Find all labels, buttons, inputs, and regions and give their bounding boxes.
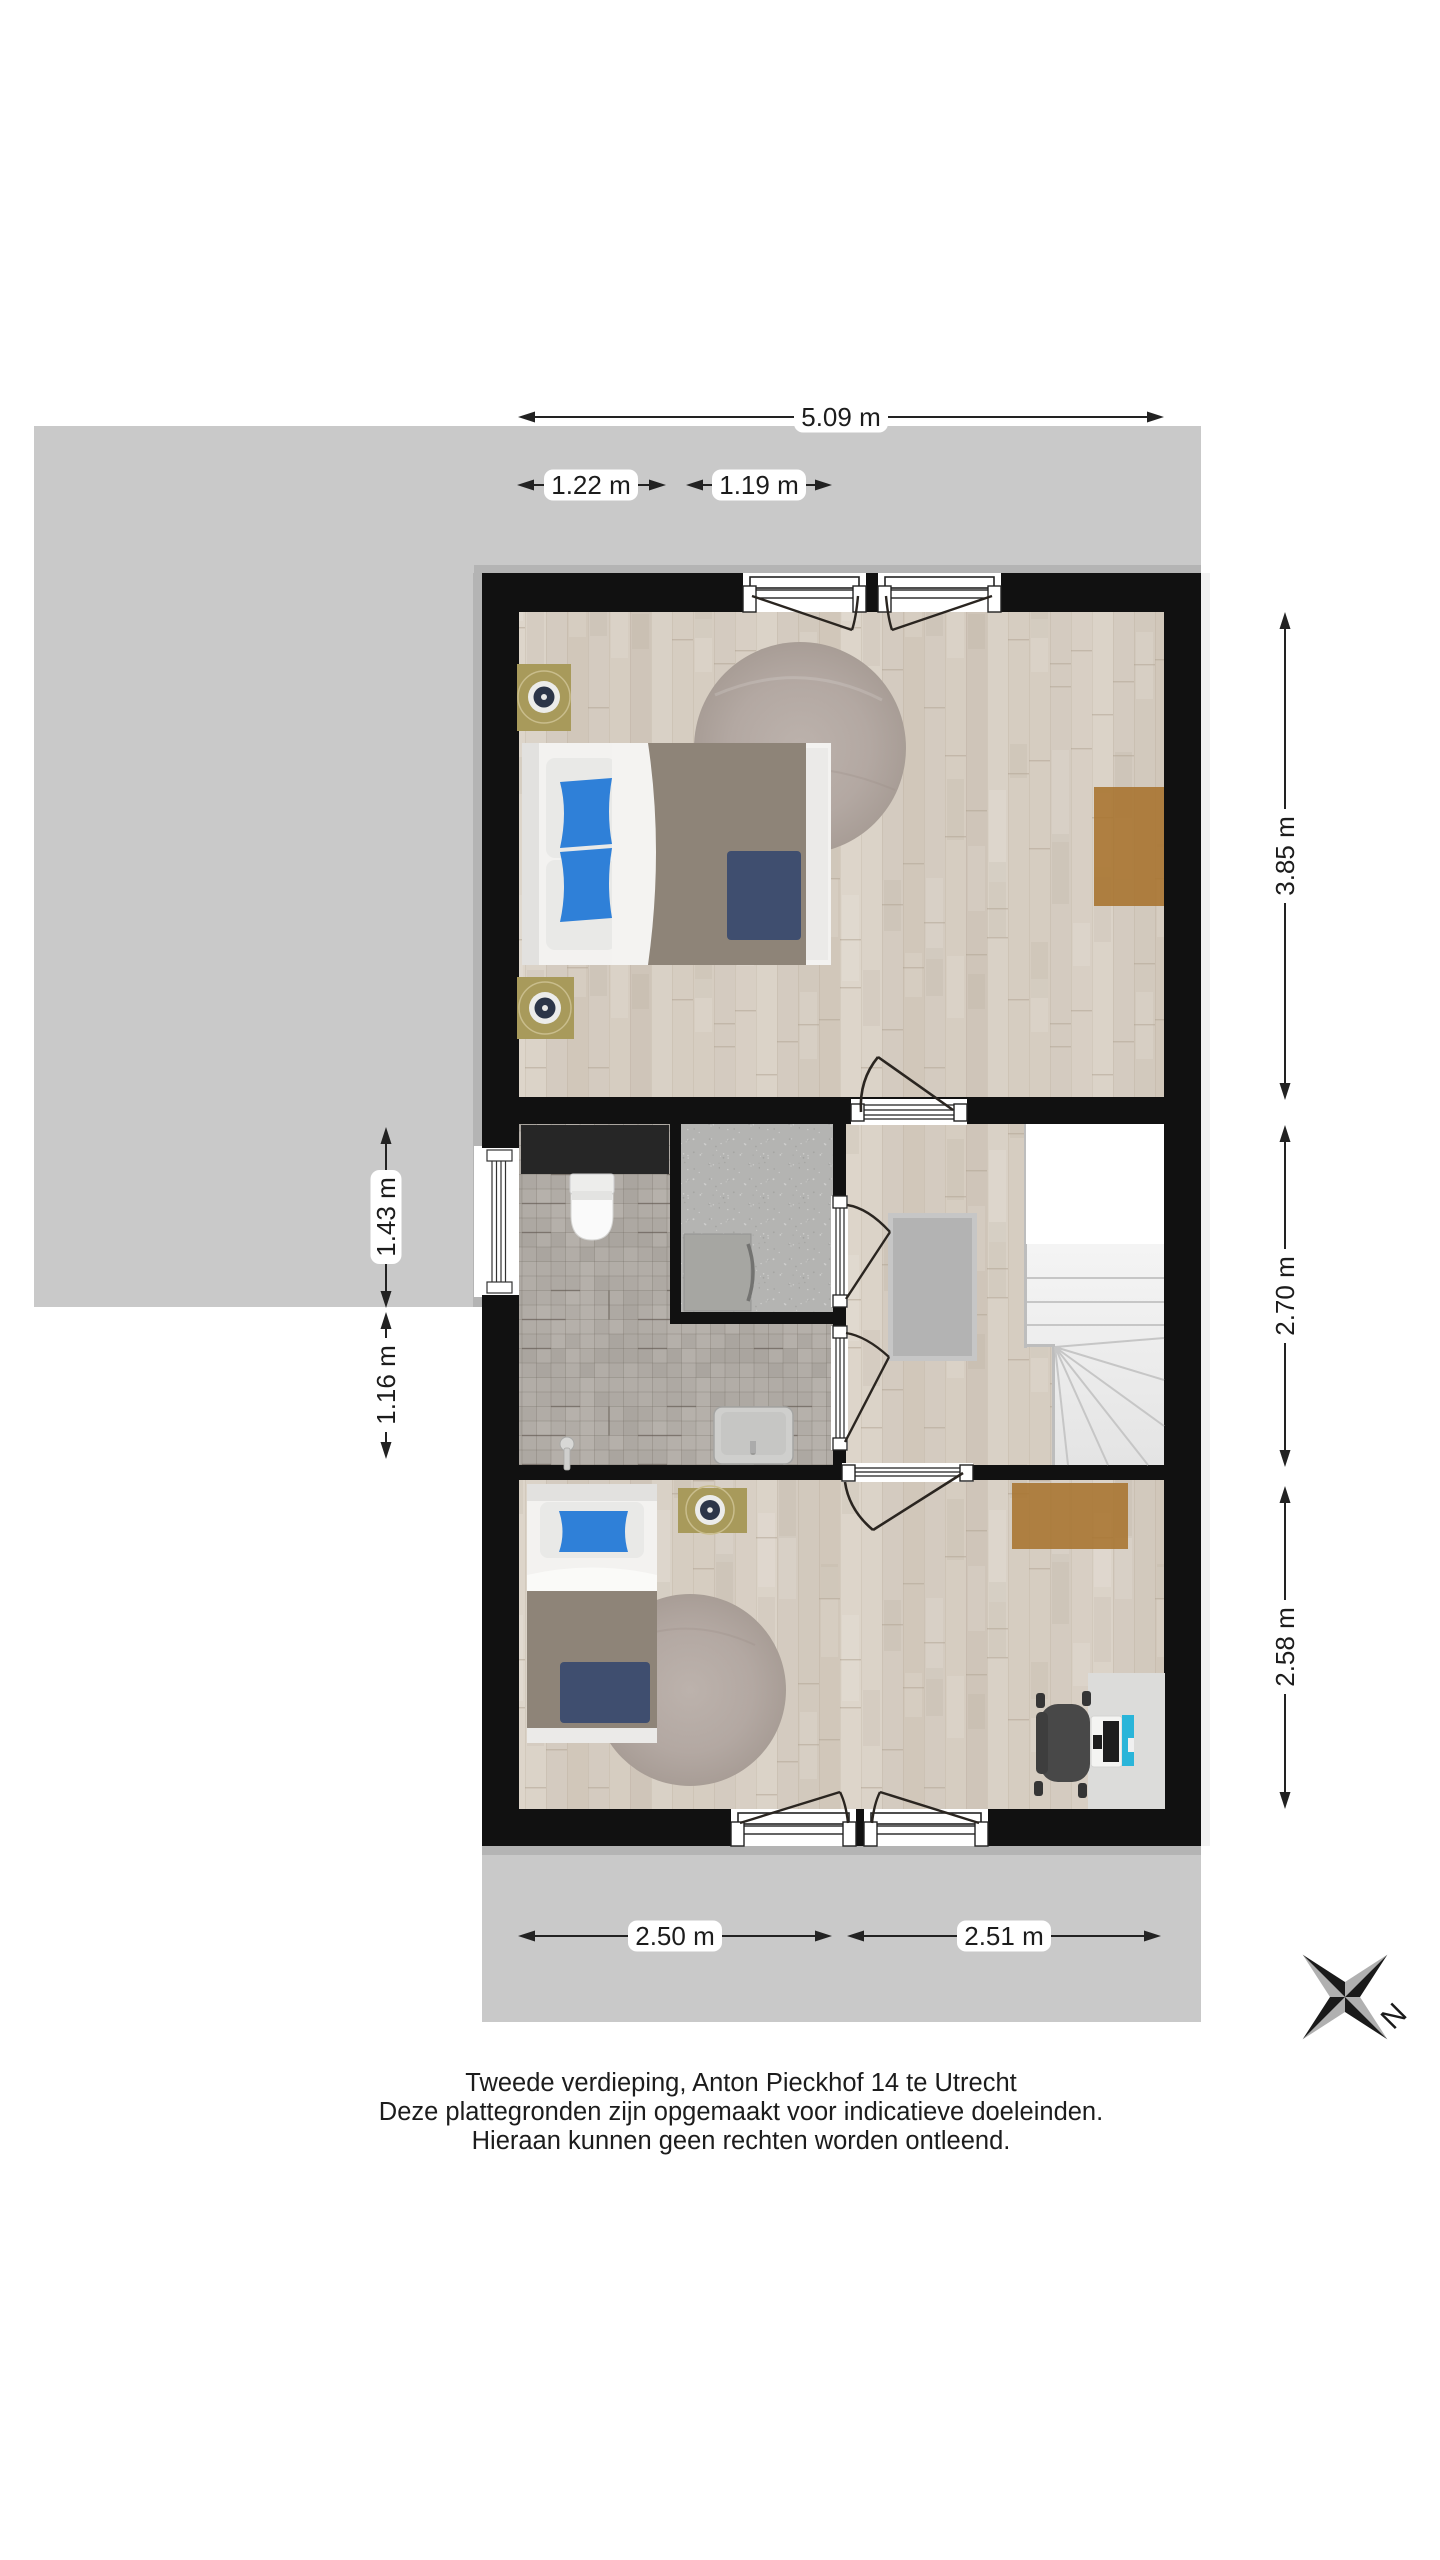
svg-text:1.16 m: 1.16 m bbox=[371, 1345, 401, 1425]
svg-text:1.22 m: 1.22 m bbox=[551, 470, 631, 500]
svg-text:1.43 m: 1.43 m bbox=[371, 1177, 401, 1257]
svg-text:2.51 m: 2.51 m bbox=[964, 1921, 1044, 1951]
svg-text:Tweede verdieping, Anton Pieck: Tweede verdieping, Anton Pieckhof 14 te … bbox=[465, 2069, 1016, 2097]
svg-text:3.85 m: 3.85 m bbox=[1270, 816, 1300, 896]
svg-text:Hieraan kunnen geen rechten wo: Hieraan kunnen geen rechten worden ontle… bbox=[472, 2127, 1011, 2155]
svg-text:Deze plattegronden zijn opgema: Deze plattegronden zijn opgemaakt voor i… bbox=[379, 2098, 1103, 2126]
svg-text:2.70 m: 2.70 m bbox=[1270, 1256, 1300, 1336]
svg-text:2.50 m: 2.50 m bbox=[635, 1921, 715, 1951]
svg-text:1.19 m: 1.19 m bbox=[719, 470, 799, 500]
svg-text:2.58 m: 2.58 m bbox=[1270, 1607, 1300, 1687]
svg-text:5.09 m: 5.09 m bbox=[801, 402, 881, 432]
